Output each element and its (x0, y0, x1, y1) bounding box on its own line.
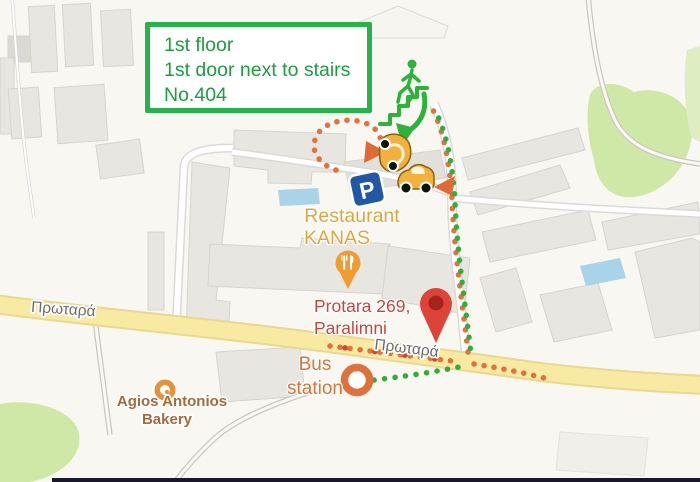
note-line-3: No.404 (164, 83, 367, 108)
building (148, 232, 164, 310)
restaurant-label-line2: KANAS (304, 227, 370, 249)
person-head (408, 60, 417, 69)
building (96, 139, 144, 179)
car-wheel (401, 183, 412, 194)
building (62, 3, 93, 66)
car-wheel (421, 183, 432, 194)
parking-sign-icon: P (348, 170, 386, 208)
car-wheel (388, 161, 398, 171)
fork-prong (346, 256, 347, 261)
bottom-dark-strip (52, 478, 700, 482)
bakery-label-line2: Bakery (142, 411, 193, 428)
car-wheel (380, 139, 390, 149)
pool (278, 188, 320, 206)
car-top-view-icon (379, 134, 410, 171)
building (54, 84, 108, 143)
fork-glyph (343, 256, 345, 270)
note-line-1: 1st floor (164, 33, 367, 58)
restaurant-label-line1: Restaurant (304, 205, 400, 227)
restaurant-pin-head (336, 251, 361, 276)
building (28, 5, 57, 72)
building (556, 432, 648, 476)
building (8, 87, 41, 139)
bus-station-label-line1: Bus (299, 354, 332, 375)
note-line-2: 1st door next to stairs (164, 58, 367, 83)
red-pin-hole (429, 296, 444, 311)
bakery-label-line1: Agios Antonios (117, 393, 227, 410)
bus-stop-circle-icon (345, 368, 370, 393)
note-box: 1st floor 1st door next to stairs No.404 (145, 22, 372, 113)
destination-label-line1: Protara 269, (314, 296, 410, 316)
destination-label-line2: Paralimni (314, 318, 387, 338)
map-image: P Restaurant KANAS Protara 269, Paralimn… (0, 0, 700, 482)
bus-station-label-line2: station (287, 378, 343, 399)
building (101, 9, 134, 66)
fork-prong (341, 256, 342, 261)
